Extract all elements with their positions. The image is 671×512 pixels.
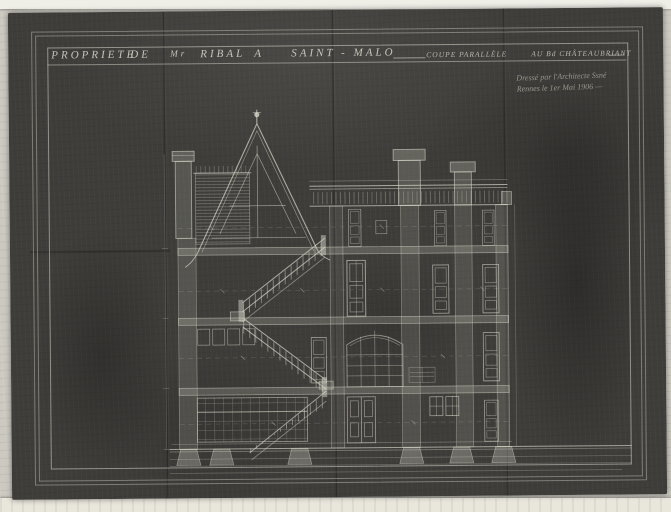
left-wing-roof (193, 166, 252, 245)
attic-storey (348, 208, 494, 247)
photograph-of-drawing: PROPRIETE DE Mr RIBAL A SAINT - MALO COU… (0, 0, 671, 512)
drawing-sheet: PROPRIETE DE Mr RIBAL A SAINT - MALO COU… (8, 7, 667, 500)
foundation-piers (177, 446, 516, 465)
title-word: DE (130, 49, 151, 61)
left-chimney (172, 151, 195, 238)
title-word: SAINT - MALO (291, 46, 395, 59)
architect-note: Dressé par l'Architecte Ssné Rennes le 1… (516, 69, 607, 94)
building-section-drawing (149, 102, 647, 481)
third-storey (347, 259, 499, 317)
title-word: PROPRIETE (51, 49, 136, 62)
newel-post (321, 235, 326, 255)
ground-and-foundations (170, 440, 632, 473)
title-word: RIBAL (200, 48, 245, 60)
subtitle-boulevard: AU Bd CHÂTEAUBRIANT (531, 48, 631, 58)
photo-paper-edge-bottom (0, 498, 671, 512)
landing (319, 381, 333, 389)
subtitle-underline (608, 54, 624, 55)
double-door (347, 397, 375, 443)
title-word: Mr (170, 48, 187, 58)
subtitle-coupe: COUPE PARALLÈLE (426, 50, 507, 60)
landing (231, 312, 245, 321)
title-word: A (254, 48, 264, 60)
ground-storey (197, 396, 498, 445)
